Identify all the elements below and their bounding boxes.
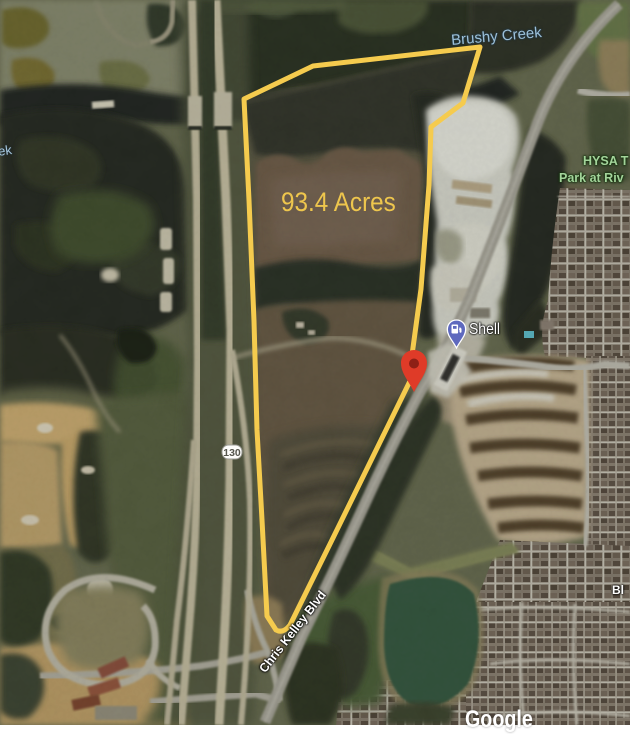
svg-text:130: 130 (223, 447, 241, 459)
